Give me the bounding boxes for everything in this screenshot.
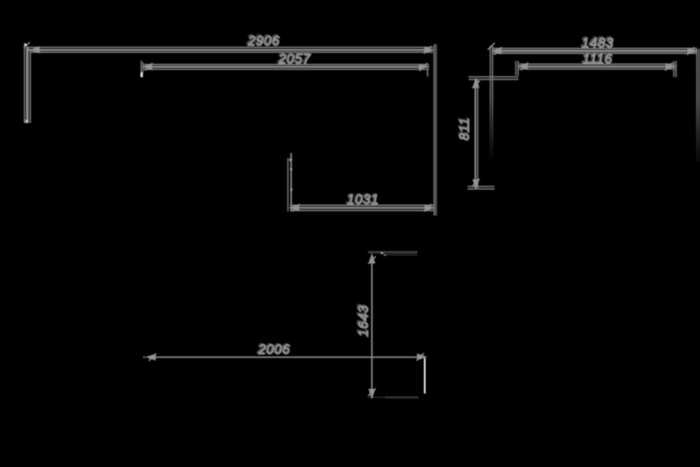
svg-text:2057: 2057 [278,52,311,67]
svg-text:1643: 1643 [356,305,371,337]
svg-text:1483: 1483 [582,36,614,51]
svg-text:1116: 1116 [583,51,613,66]
svg-text:2006: 2006 [257,342,290,357]
svg-text:811: 811 [457,118,472,141]
svg-text:2906: 2906 [247,33,280,48]
svg-text:1031: 1031 [347,192,379,207]
